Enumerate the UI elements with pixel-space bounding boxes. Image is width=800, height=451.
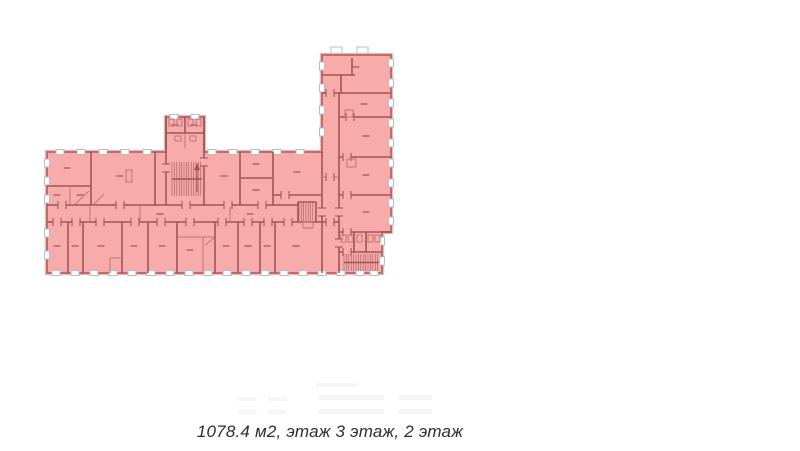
faint-remnants (238, 383, 432, 414)
floor-plan (0, 0, 800, 451)
area-caption: 1078.4 м2, этаж 3 этаж, 2 этаж (0, 422, 660, 442)
screenshot-root: 1078.4 м2, этаж 3 этаж, 2 этаж (0, 0, 800, 451)
